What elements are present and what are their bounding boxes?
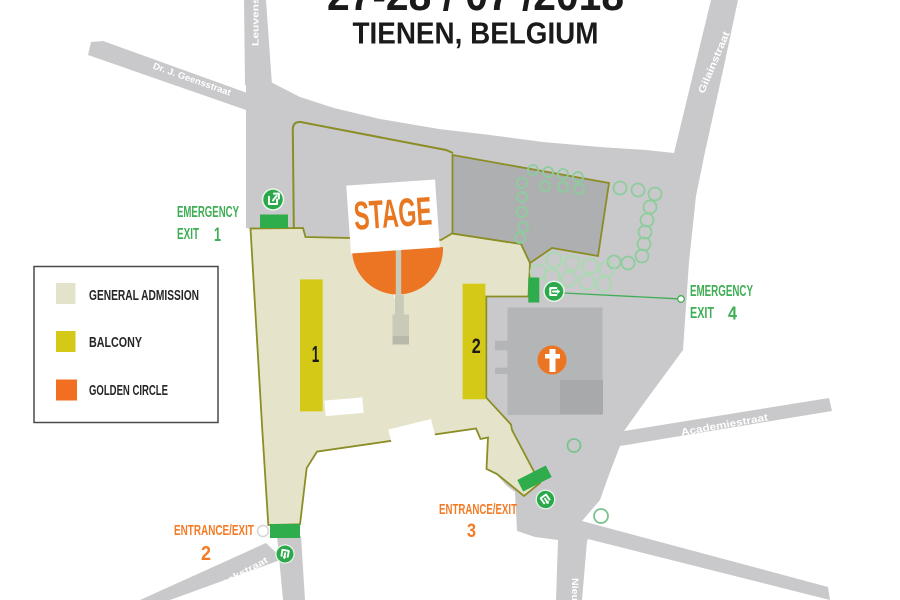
svg-text:3: 3 xyxy=(467,521,476,542)
svg-text:ENTRANCE/EXIT: ENTRANCE/EXIT xyxy=(174,522,254,539)
svg-text:EMERGENCY: EMERGENCY xyxy=(690,283,753,300)
svg-text:EMERGENCY: EMERGENCY xyxy=(177,204,239,221)
svg-text:Nieuwstraat: Nieuwstraat xyxy=(570,578,580,600)
svg-text:EXIT: EXIT xyxy=(690,305,714,322)
svg-text:EXIT: EXIT xyxy=(177,226,199,243)
svg-text:1: 1 xyxy=(214,225,221,246)
svg-text:ENTRANCE/EXIT: ENTRANCE/EXIT xyxy=(439,501,517,518)
svg-text:Leuvensestraat: Leuvensestraat xyxy=(251,0,261,46)
svg-text:GOLDEN CIRCLE: GOLDEN CIRCLE xyxy=(89,383,168,399)
svg-text:2: 2 xyxy=(201,543,211,565)
svg-text:4: 4 xyxy=(728,304,737,324)
svg-text:2: 2 xyxy=(472,335,481,358)
svg-text:STAGE: STAGE xyxy=(352,189,433,238)
svg-text:BALCONY: BALCONY xyxy=(89,335,142,351)
svg-text:GENERAL ADMISSION: GENERAL ADMISSION xyxy=(89,288,199,304)
svg-text:TIENEN, BELGIUM: TIENEN, BELGIUM xyxy=(353,16,599,51)
svg-text:1: 1 xyxy=(312,341,320,367)
